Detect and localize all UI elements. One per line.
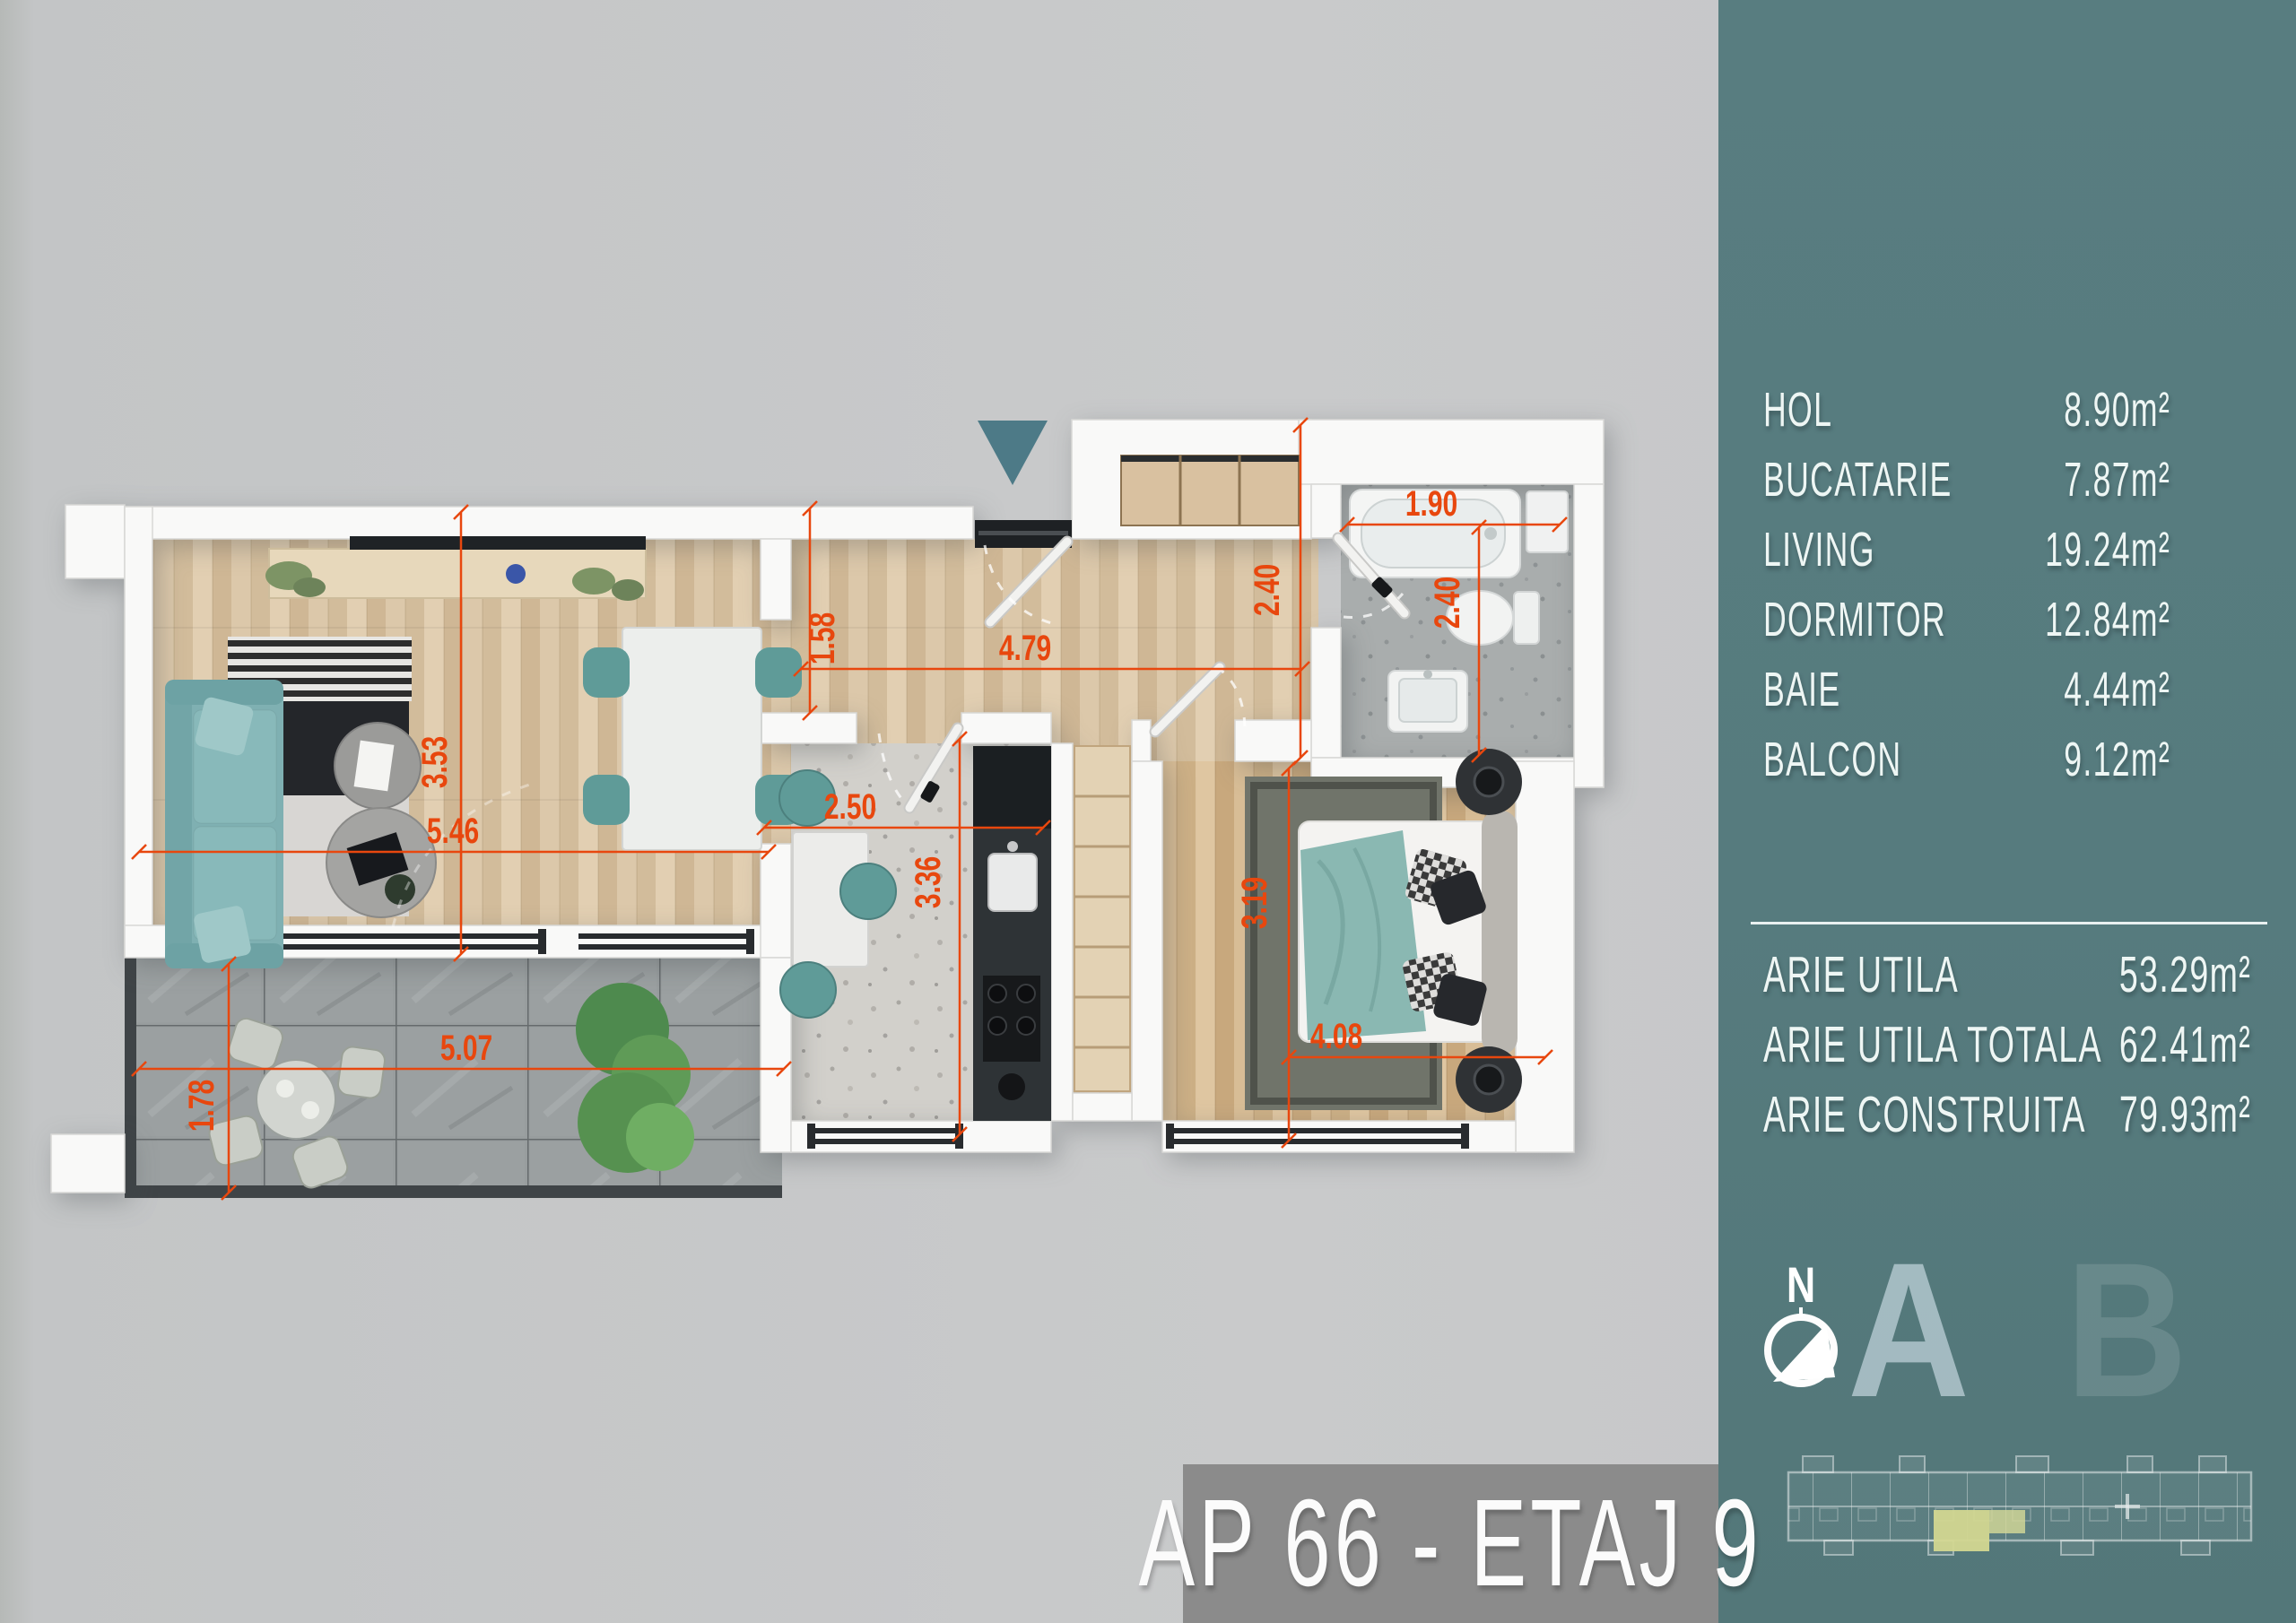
kettle xyxy=(998,1073,1025,1100)
headboard xyxy=(1482,811,1518,1055)
shelf-column xyxy=(1074,746,1130,1091)
svg-text:3.19: 3.19 xyxy=(1235,877,1274,929)
svg-text:2.40: 2.40 xyxy=(1428,577,1467,629)
vase-decor xyxy=(506,564,526,584)
compass: N xyxy=(1768,1256,1835,1384)
balcony-table xyxy=(257,1060,335,1139)
bathroom-sink xyxy=(1388,670,1467,732)
svg-text:2.40: 2.40 xyxy=(1248,564,1287,616)
svg-text:2.50: 2.50 xyxy=(824,787,876,827)
entrance-marker-icon xyxy=(978,421,1048,485)
compass-north-label: N xyxy=(1787,1256,1815,1313)
floor-plan: 3.53 5.46 5.07 1.78 xyxy=(51,418,1604,1200)
svg-text:5.46: 5.46 xyxy=(427,811,479,851)
dining-table xyxy=(622,628,761,850)
svg-text:4.79: 4.79 xyxy=(999,629,1051,668)
svg-text:1.58: 1.58 xyxy=(803,612,842,664)
svg-text:1.90: 1.90 xyxy=(1405,484,1457,524)
fridge xyxy=(973,746,1051,829)
building-overview-map xyxy=(1788,1456,2251,1555)
highlighted-unit xyxy=(1934,1510,1989,1551)
highlighted-unit-part xyxy=(1989,1510,2025,1533)
svg-text:3.53: 3.53 xyxy=(415,736,455,788)
kitchen-sink xyxy=(988,854,1037,911)
entrance-sill-step xyxy=(978,531,1068,535)
sofa xyxy=(165,680,283,968)
svg-text:1.78: 1.78 xyxy=(182,1080,222,1132)
svg-text:3.36: 3.36 xyxy=(909,856,948,908)
floor-plan-canvas: 3.53 5.46 5.07 1.78 xyxy=(0,0,2296,1623)
svg-text:5.07: 5.07 xyxy=(440,1028,492,1068)
stove xyxy=(983,976,1040,1062)
wardrobe xyxy=(1121,456,1299,525)
page: HOL 8.90m² BUCATARIE 7.87m² LIVING 19.24… xyxy=(0,0,2296,1623)
tv xyxy=(350,536,646,550)
compass-arrow-icon xyxy=(1773,1324,1835,1382)
svg-text:4.08: 4.08 xyxy=(1310,1017,1362,1056)
